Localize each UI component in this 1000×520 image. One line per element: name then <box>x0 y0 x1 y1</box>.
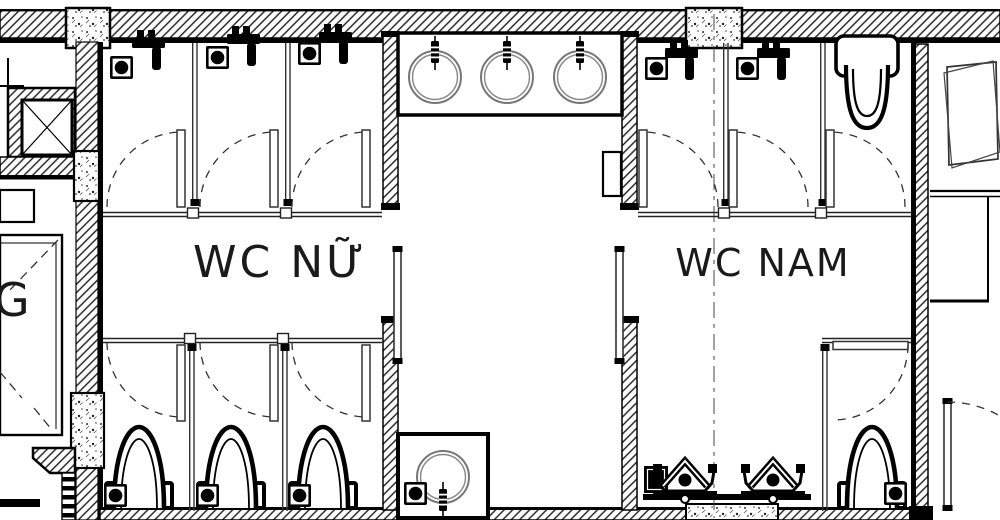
door-leaf <box>616 250 623 360</box>
door-swing-arc <box>643 132 905 207</box>
wc-nu-entrance-door <box>393 246 403 364</box>
section-break <box>62 473 75 520</box>
floor-plan: WC NỮ WC NAM G <box>0 0 1000 520</box>
door-leaf <box>944 402 951 507</box>
corridor-sinks <box>381 31 639 518</box>
right-room <box>930 61 1000 511</box>
floor-plan-screenshot: WC NỮ WC NAM G <box>0 0 1000 520</box>
floor-drain-icon <box>110 56 133 79</box>
door-leaf <box>177 345 370 421</box>
stall-partition <box>821 344 830 511</box>
floor-drain-icon <box>884 482 907 505</box>
floor-drain-icon <box>104 484 127 507</box>
spray-gun-icon <box>757 40 790 80</box>
equipment-pad <box>947 62 998 165</box>
door-leaf <box>639 130 834 207</box>
floor-drain-icon <box>736 57 759 80</box>
concrete-column <box>74 151 99 201</box>
wall-hung-toilet-icon <box>836 36 898 128</box>
floor-drain-icon <box>196 484 219 507</box>
door-swing-arc <box>833 345 908 420</box>
door-leaf <box>394 250 401 360</box>
floor-drain-icon <box>206 46 229 69</box>
door-swing-arc <box>107 132 367 207</box>
door-swing-arc <box>107 342 367 417</box>
floor-drain-icon <box>404 482 427 505</box>
wc-nam-label: WC NAM <box>675 241 850 285</box>
door-swing-arc <box>947 402 1000 416</box>
wc-nu-label: WC NỮ <box>193 235 367 288</box>
door-leaf <box>177 130 370 207</box>
left-room <box>0 190 75 520</box>
door-leaf <box>833 342 908 350</box>
floor-drain-icon <box>288 484 311 507</box>
wc-nam-east-wall <box>909 42 933 520</box>
floor-drain-icon <box>645 57 668 80</box>
floor-drain-icon <box>298 42 321 65</box>
wc-nam-entrance-door <box>615 246 625 364</box>
wall-niche <box>603 152 621 196</box>
concrete-column <box>686 504 778 520</box>
adjacent-room-label: G <box>0 273 30 327</box>
